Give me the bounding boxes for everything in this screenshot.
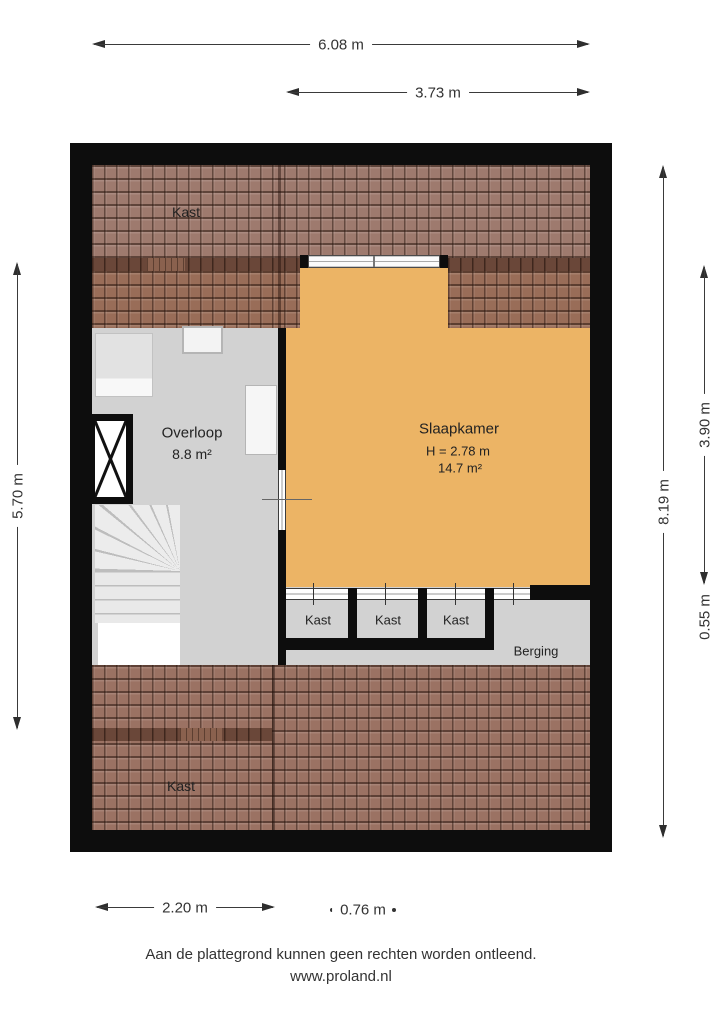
dimension-right-mid: 3.90 m xyxy=(698,265,712,585)
furniture-desk xyxy=(95,333,153,397)
dimension-bottom-right: 0.76 m xyxy=(330,903,396,917)
floorplan-interior: Kast Overloop 8.8 m² Slaapkamer H = 2.78… xyxy=(92,165,590,830)
room-label-kast-bottom: Kast xyxy=(167,778,195,794)
arrow-down-icon xyxy=(659,825,667,838)
arrow-down-icon xyxy=(13,717,21,730)
footer-disclaimer: Aan de plattegrond kunnen geen rechten w… xyxy=(70,944,612,966)
arrow-right-icon xyxy=(262,903,275,911)
room-label-kast-2: Kast xyxy=(375,613,401,628)
dimension-bottom-left: 2.20 m xyxy=(95,901,275,915)
sliding-door xyxy=(278,470,286,530)
roof-kast-bottom xyxy=(92,665,590,830)
window-jamb xyxy=(440,255,448,268)
x-cross-icon xyxy=(95,421,126,497)
staircase xyxy=(95,505,180,623)
shaft-box xyxy=(92,414,133,504)
shaft-void xyxy=(95,421,126,497)
dimension-top-inner: 3.73 m xyxy=(286,86,590,100)
stairwell-void xyxy=(98,623,180,665)
room-label-berging: Berging xyxy=(514,644,559,659)
room-label-slaapkamer: Slaapkamer xyxy=(419,421,499,438)
door-tick-mark xyxy=(455,583,456,605)
straight-steps xyxy=(95,571,180,623)
footer-website: www.proland.nl xyxy=(70,966,612,988)
floorplan-drawing: Kast Overloop 8.8 m² Slaapkamer H = 2.78… xyxy=(70,143,612,852)
arrow-right-icon xyxy=(577,88,590,96)
roof-slope-left xyxy=(92,271,300,330)
dimension-label: 0.76 m xyxy=(332,902,394,919)
dimension-tick-icon xyxy=(392,908,396,912)
knee-wall-band xyxy=(92,258,300,271)
room-label-kast-top: Kast xyxy=(172,204,200,220)
knee-wall-band-light xyxy=(147,258,185,271)
dimension-label: 3.73 m xyxy=(407,85,469,102)
dimension-label: 8.19 m xyxy=(656,471,673,533)
arrow-right-icon xyxy=(577,40,590,48)
wall-segment xyxy=(278,328,286,470)
closet-bottom-wall xyxy=(283,638,494,650)
knee-wall-band-light xyxy=(180,728,222,741)
knee-wall-band xyxy=(448,258,590,271)
floorplan-canvas: 6.08 m 3.73 m 5.70 m 8.19 m 3.90 m 0.55 … xyxy=(0,0,724,1024)
door-tick-mark xyxy=(313,583,314,605)
winder-steps xyxy=(95,505,180,571)
dimension-label: 3.90 m xyxy=(697,394,714,456)
slaapkamer-dormer-area xyxy=(300,268,448,330)
window-jamb xyxy=(300,255,308,268)
room-area-overloop: 8.8 m² xyxy=(172,446,212,462)
wall-segment xyxy=(530,585,590,600)
dimension-top-outer: 6.08 m xyxy=(92,38,590,52)
roof-slope-right xyxy=(448,271,590,330)
furniture-cabinet xyxy=(245,385,277,455)
roof-ridge-line xyxy=(272,665,275,830)
room-label-kast-3: Kast xyxy=(443,613,469,628)
dimension-label: 6.08 m xyxy=(310,37,372,54)
dimension-label: 5.70 m xyxy=(10,465,27,527)
room-label-overloop: Overloop xyxy=(162,425,223,442)
room-label-kast-1: Kast xyxy=(305,613,331,628)
furniture-table xyxy=(182,326,223,354)
door-tick-mark xyxy=(513,583,514,605)
room-area-slaapkamer: 14.7 m² xyxy=(438,461,482,476)
door-tick-mark xyxy=(262,499,312,500)
dimension-right-lower-label: 0.55 m xyxy=(697,594,714,640)
dimension-label: 2.20 m xyxy=(154,900,216,917)
roof-window xyxy=(308,255,440,268)
dimension-right-outer: 8.19 m xyxy=(657,165,671,838)
wall-segment xyxy=(278,530,286,672)
roof-kast-top xyxy=(92,165,590,258)
room-height-slaapkamer: H = 2.78 m xyxy=(426,444,490,459)
arrow-down-icon xyxy=(700,572,708,585)
door-tick-mark xyxy=(385,583,386,605)
roof-ridge-line xyxy=(278,165,281,328)
dimension-left: 5.70 m xyxy=(11,262,25,730)
